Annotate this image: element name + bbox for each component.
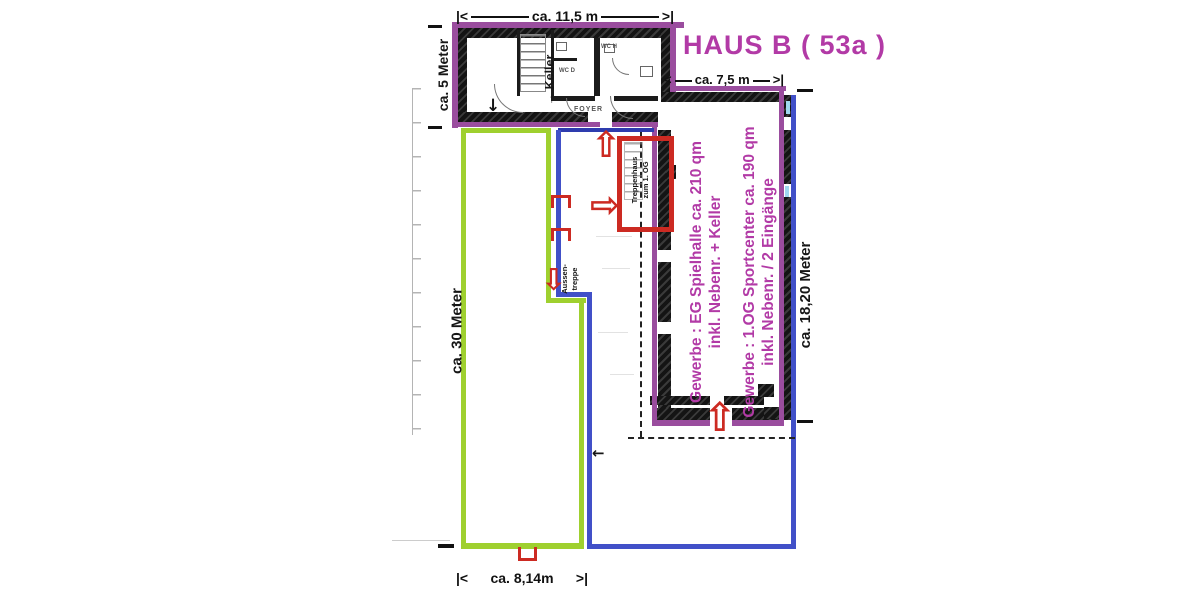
label-aussentreppe-line2: treppe (570, 254, 580, 304)
purple-outline-upper-bottom-a (452, 122, 600, 127)
plan-title: HAUS B ( 53a ) (683, 30, 886, 61)
dimension-left-height: ca. 30 Meter (449, 259, 467, 404)
ghost-line-2 (602, 268, 630, 269)
dimension-bottom-width: |< ca. 8,14m >| (456, 570, 588, 586)
tick-18m-top (797, 89, 813, 92)
dimension-bottom-marker-left: |< (456, 570, 468, 586)
dimension-wing-width: < ca. 7,5 m >| (664, 72, 784, 87)
tick-30m-bottom (438, 544, 454, 548)
door-arc-4 (612, 58, 629, 75)
wall-top (458, 28, 670, 38)
red-arrow-up-foyer: ⇧ (591, 128, 621, 164)
ghost-line-1 (596, 236, 632, 237)
label-foyer: FOYER (574, 106, 603, 113)
faint-baseline (392, 540, 450, 541)
green-outline-inner-lower (579, 298, 584, 548)
dimension-top-line-left (471, 16, 529, 18)
label-wc-d: WC D (559, 68, 575, 74)
window-accent-1 (785, 186, 789, 197)
arrow-down-icon: ↓ (486, 96, 500, 116)
note-gewerbe-og-line1: Gewerbe : 1.OG Sportcenter ca. 190 qm (740, 122, 759, 422)
dimension-upper-left-height: ca. 5 Meter (435, 25, 451, 125)
wc-fixture-3 (640, 66, 653, 77)
label-aussentreppe: Aussen- treppe (560, 254, 582, 304)
tick-5m-bottom (428, 126, 442, 129)
dimension-top-marker-right: >| (662, 8, 674, 24)
entrance-marker-2 (551, 228, 571, 241)
note-gewerbe-eg: Gewerbe : EG Spielhalle ca. 210 qm inkl.… (687, 122, 727, 422)
red-arrow-right-treppenhaus: ⇨ (590, 188, 620, 224)
ghost-line-4 (610, 374, 634, 375)
label-keller: → Keller (543, 45, 559, 115)
wall-bottom-upper-a (458, 112, 588, 122)
entrance-marker-3 (518, 547, 537, 561)
interior-wall-wc-mid (594, 38, 600, 96)
survey-measure-strip (412, 88, 421, 435)
label-aussentreppe-line1: Aussen- (560, 254, 570, 304)
window-gap-left-1 (658, 250, 671, 262)
label-treppenhaus: Treppenhaus zum 1. OG (629, 137, 653, 223)
ghost-line-3 (598, 332, 628, 333)
wall-wing-top (661, 92, 779, 102)
floor-plan: ⇧ ⇨ ⇩ ⇧ HAUS B ( 53a ) |< ca. 11,5 m >| … (0, 0, 1200, 600)
note-gewerbe-eg-line1: Gewerbe : EG Spielhalle ca. 210 qm (687, 122, 706, 422)
dimension-top-marker-left: |< (456, 8, 468, 24)
note-gewerbe-og-line2: inkl. Nebenr. / 2 Eingänge (759, 122, 778, 422)
dimension-right-height: ca. 18,20 Meter (797, 235, 815, 355)
dimension-wing-label: ca. 7,5 m (695, 72, 750, 87)
window-accent-2 (786, 101, 790, 114)
purple-outline-left (452, 22, 458, 128)
blue-outline-bottom (587, 544, 795, 549)
arrow-left-icon: ← (592, 444, 605, 462)
blue-outline-left-lower (587, 292, 592, 548)
dimension-top-label: ca. 11,5 m (532, 8, 598, 24)
dimension-bottom-label: ca. 8,14m (490, 570, 553, 586)
entrance-marker-1 (551, 195, 571, 208)
dimension-bottom-marker-right: >| (576, 570, 588, 586)
dimension-wing-marker-right: >| (773, 72, 784, 87)
dimension-top-line-right (601, 16, 659, 18)
window-gap-left-2 (658, 322, 671, 334)
label-wc-h: WC H (601, 44, 617, 50)
tick-18m-bottom (797, 420, 813, 423)
label-treppenhaus-line1: Treppenhaus (629, 137, 640, 223)
wall-left-upper (458, 28, 467, 122)
note-gewerbe-eg-line2: inkl. Nebenr. + Keller (706, 122, 725, 422)
dimension-wing-marker-left: < (664, 72, 672, 87)
green-outline-top (461, 128, 551, 133)
keller-arrow-icon: → (543, 93, 557, 106)
label-keller-text: Keller (543, 55, 557, 90)
dimension-top-width: |< ca. 11,5 m >| (456, 8, 674, 24)
note-gewerbe-og: Gewerbe : 1.OG Sportcenter ca. 190 qm in… (740, 122, 780, 422)
dimension-wing-line-right (753, 80, 770, 82)
dimension-wing-line-left (675, 80, 692, 82)
label-treppenhaus-line2: zum 1. OG (640, 137, 651, 223)
blue-outline-right (791, 95, 796, 549)
